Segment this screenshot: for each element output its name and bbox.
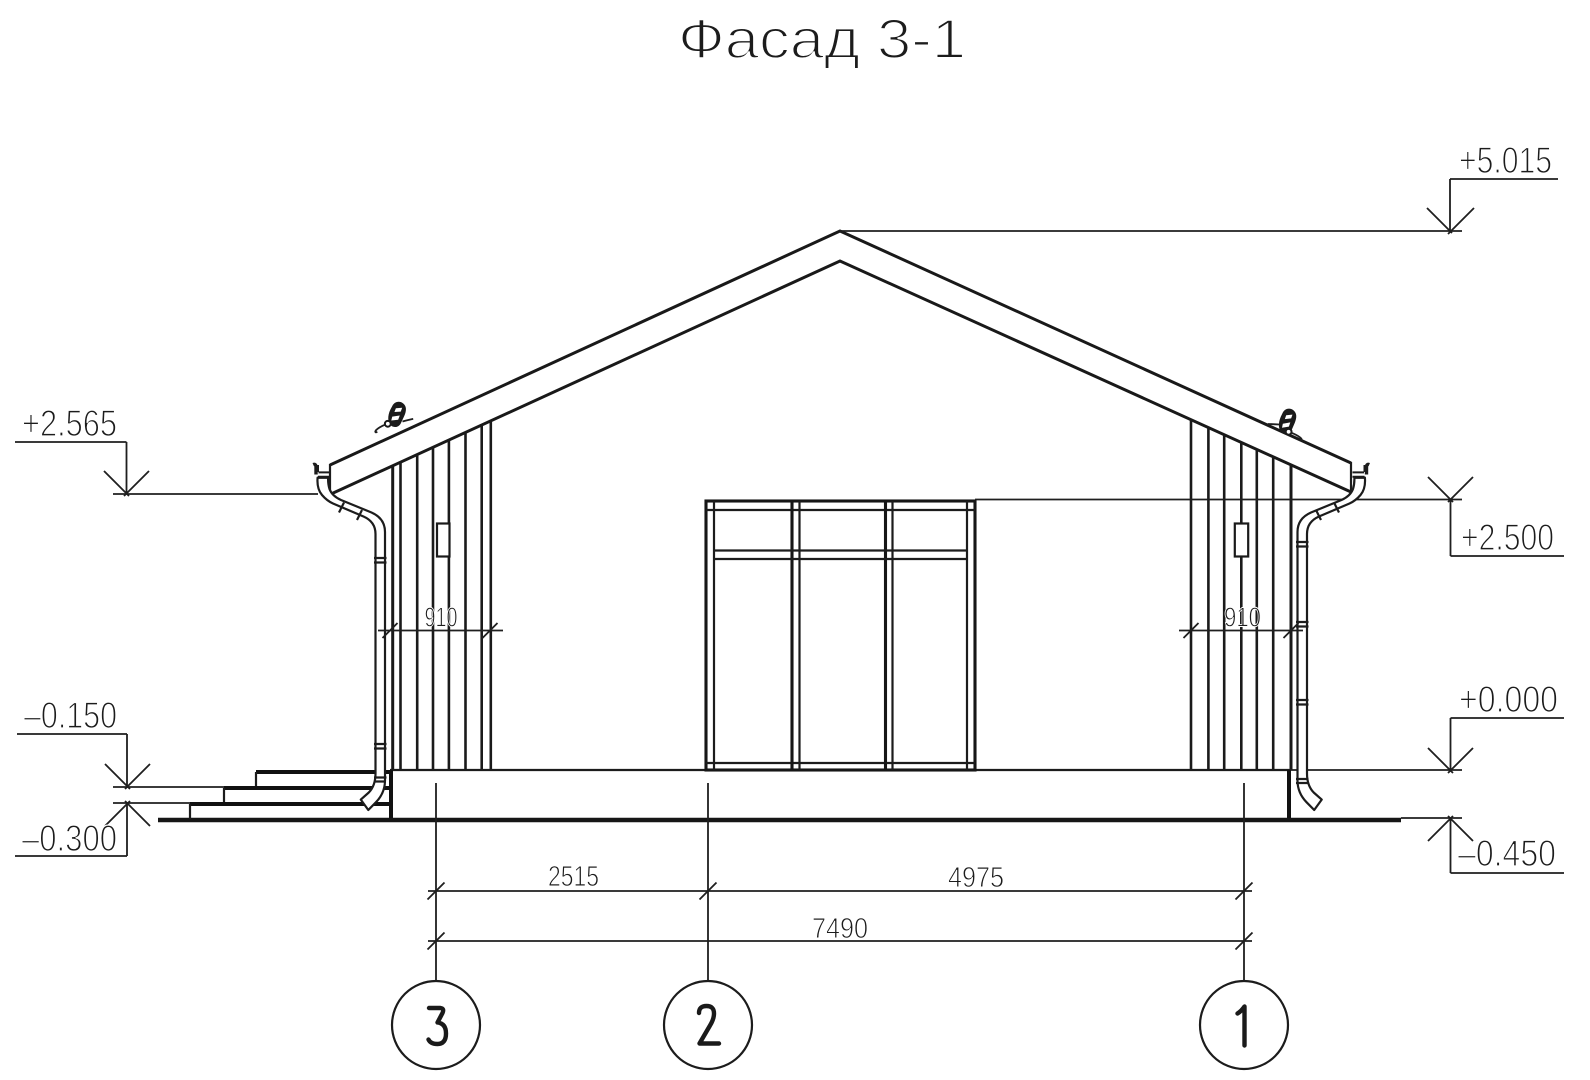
svg-text:–0.300: –0.300	[22, 818, 117, 859]
svg-text:+2.500: +2.500	[1461, 517, 1554, 558]
svg-text:Фасад 3-1: Фасад 3-1	[678, 7, 966, 70]
svg-text:7490: 7490	[812, 913, 868, 945]
svg-text:2515: 2515	[548, 861, 599, 893]
svg-text:910: 910	[1224, 602, 1261, 633]
svg-text:+5.015: +5.015	[1459, 140, 1552, 181]
svg-text:+2.565: +2.565	[22, 403, 117, 444]
svg-text:+0.000: +0.000	[1459, 679, 1558, 720]
svg-text:4975: 4975	[948, 862, 1004, 894]
svg-text:–0.150: –0.150	[24, 695, 117, 736]
svg-text:910: 910	[425, 602, 458, 633]
svg-text:–0.450: –0.450	[1458, 833, 1556, 874]
